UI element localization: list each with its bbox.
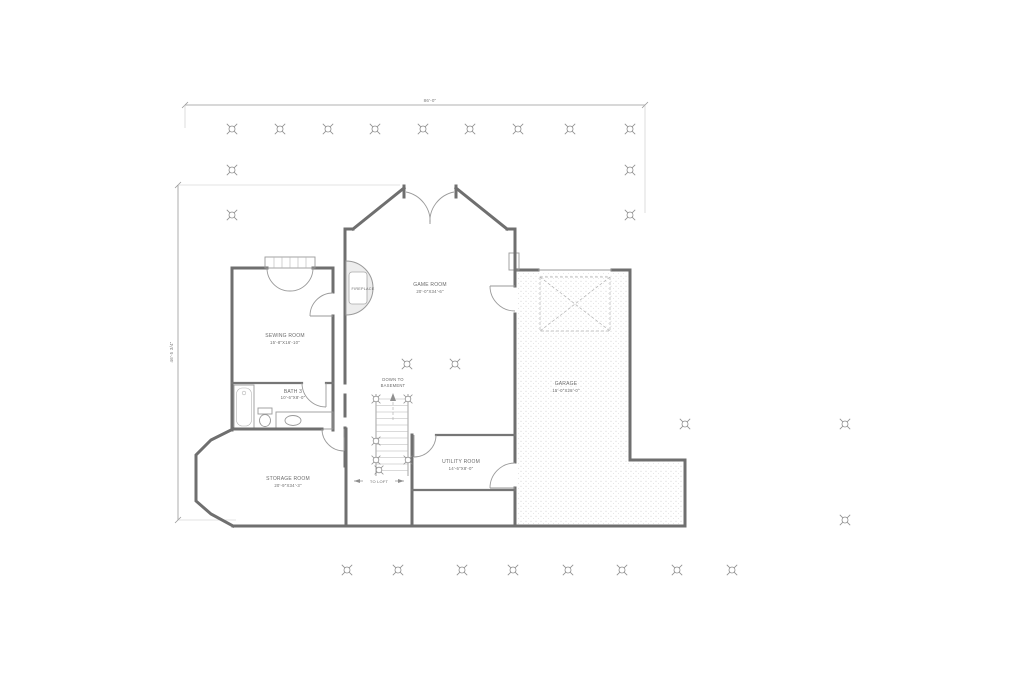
- grid-marker-icon: [727, 565, 737, 575]
- floor-plan-sheet: 86'-0" 46'-5 3/4": [0, 0, 1024, 683]
- grid-marker-icon: [625, 165, 635, 175]
- stair-treads: [376, 399, 408, 471]
- stair-post-icon: [372, 437, 381, 446]
- utility-room: UTILITY ROOM 14'-6"X8'-0": [412, 435, 515, 526]
- stair-post-icon: [404, 456, 413, 465]
- floor-plan-canvas: 86'-0" 46'-5 3/4": [0, 0, 1024, 683]
- grid-marker-icon: [513, 124, 523, 134]
- grid-marker-icon: [323, 124, 333, 134]
- grid-marker-icon: [563, 565, 573, 575]
- left-dimension: 46'-5 3/4": [169, 182, 400, 523]
- grid-marker-icon: [402, 359, 412, 369]
- garage: GARAGE 15'-0"X28'-0": [509, 253, 685, 526]
- garage-size: 15'-0"X28'-0": [552, 388, 580, 393]
- garage-label: GARAGE: [555, 381, 578, 387]
- grid-marker-icon: [565, 124, 575, 134]
- storage-room-label: STORAGE ROOM: [266, 476, 310, 482]
- to-loft-arrow-icon: [354, 479, 360, 483]
- grid-marker-icon: [672, 565, 682, 575]
- vanity-sink: [276, 412, 333, 429]
- to-loft-label: TO LOFT: [370, 479, 389, 484]
- grid-marker-icon: [840, 419, 850, 429]
- stair-post-icon: [372, 456, 381, 465]
- door-swing-arc: [290, 268, 313, 291]
- grid-marker-icon: [625, 210, 635, 220]
- grid-marker-icon: [370, 124, 380, 134]
- door-swing-arc: [267, 268, 290, 291]
- stair-post-icon: [404, 395, 413, 404]
- door-swing-arc: [490, 286, 515, 311]
- stair-post-icon: [372, 395, 381, 404]
- grid-marker-icon: [227, 165, 237, 175]
- stairs: DOWN TO BASEMENT TO LOFT: [354, 377, 412, 484]
- down-to-basement-label-line2: BASEMENT: [381, 383, 406, 388]
- utility-room-label: UTILITY ROOM: [442, 459, 480, 465]
- grid-marker-icon: [508, 565, 518, 575]
- garage-floor: [517, 272, 683, 524]
- to-loft-arrow-icon: [398, 479, 404, 483]
- door-swing-arc: [310, 293, 333, 316]
- grid-marker-icon: [625, 124, 635, 134]
- storage-room-size: 20'-9"X34'-3": [274, 483, 302, 488]
- utility-room-size: 14'-6"X8'-0": [449, 466, 474, 471]
- door-swing-arc: [406, 192, 430, 224]
- sewing-room: SEWING ROOM 15'-8"X16'-10": [232, 257, 333, 430]
- grid-marker-icon: [393, 565, 403, 575]
- grid-marker-icon: [227, 124, 237, 134]
- door-swing-arc: [430, 192, 454, 224]
- bath-3-size: 10'-6"X8'-0": [281, 395, 306, 400]
- grid-marker-icon: [680, 419, 690, 429]
- grid-marker-icon: [418, 124, 428, 134]
- game-room-size: 20'-0"X34'-6": [416, 289, 444, 294]
- sewing-room-label: SEWING ROOM: [265, 333, 304, 339]
- door-swing-arc: [322, 429, 344, 451]
- grid-marker-icon: [342, 565, 352, 575]
- grid-marker-icon: [275, 124, 285, 134]
- bathtub: [234, 385, 254, 429]
- left-dimension-label: 46'-5 3/4": [169, 341, 174, 362]
- bath-3: BATH 3 10'-6"X8'-0": [232, 383, 333, 429]
- door-swing-arc: [302, 383, 326, 407]
- game-room-label: GAME ROOM: [413, 282, 446, 288]
- stair-post-icon: [375, 466, 384, 475]
- grid-marker-icon: [457, 565, 467, 575]
- sewing-room-size: 15'-8"X16'-10": [270, 340, 300, 345]
- grid-marker-icon: [450, 359, 460, 369]
- grid-marker-icon: [617, 565, 627, 575]
- grid-marker-icon: [465, 124, 475, 134]
- toilet: [258, 408, 272, 427]
- to-loft-note: TO LOFT: [354, 479, 404, 484]
- top-dimension-label: 86'-0": [424, 98, 437, 103]
- door-swing-arc: [490, 463, 515, 488]
- stair-arrow-icon: [390, 393, 396, 401]
- grid-marker-icon: [840, 515, 850, 525]
- game-room: GAME ROOM 20'-0"X34'-6": [345, 186, 515, 526]
- grid-marker-icon: [227, 210, 237, 220]
- fireplace-label: FIREPLACE: [352, 287, 375, 291]
- fireplace: FIREPLACE: [346, 261, 375, 315]
- down-to-basement-label-line1: DOWN TO: [382, 377, 404, 382]
- door-swing-arc: [414, 435, 436, 457]
